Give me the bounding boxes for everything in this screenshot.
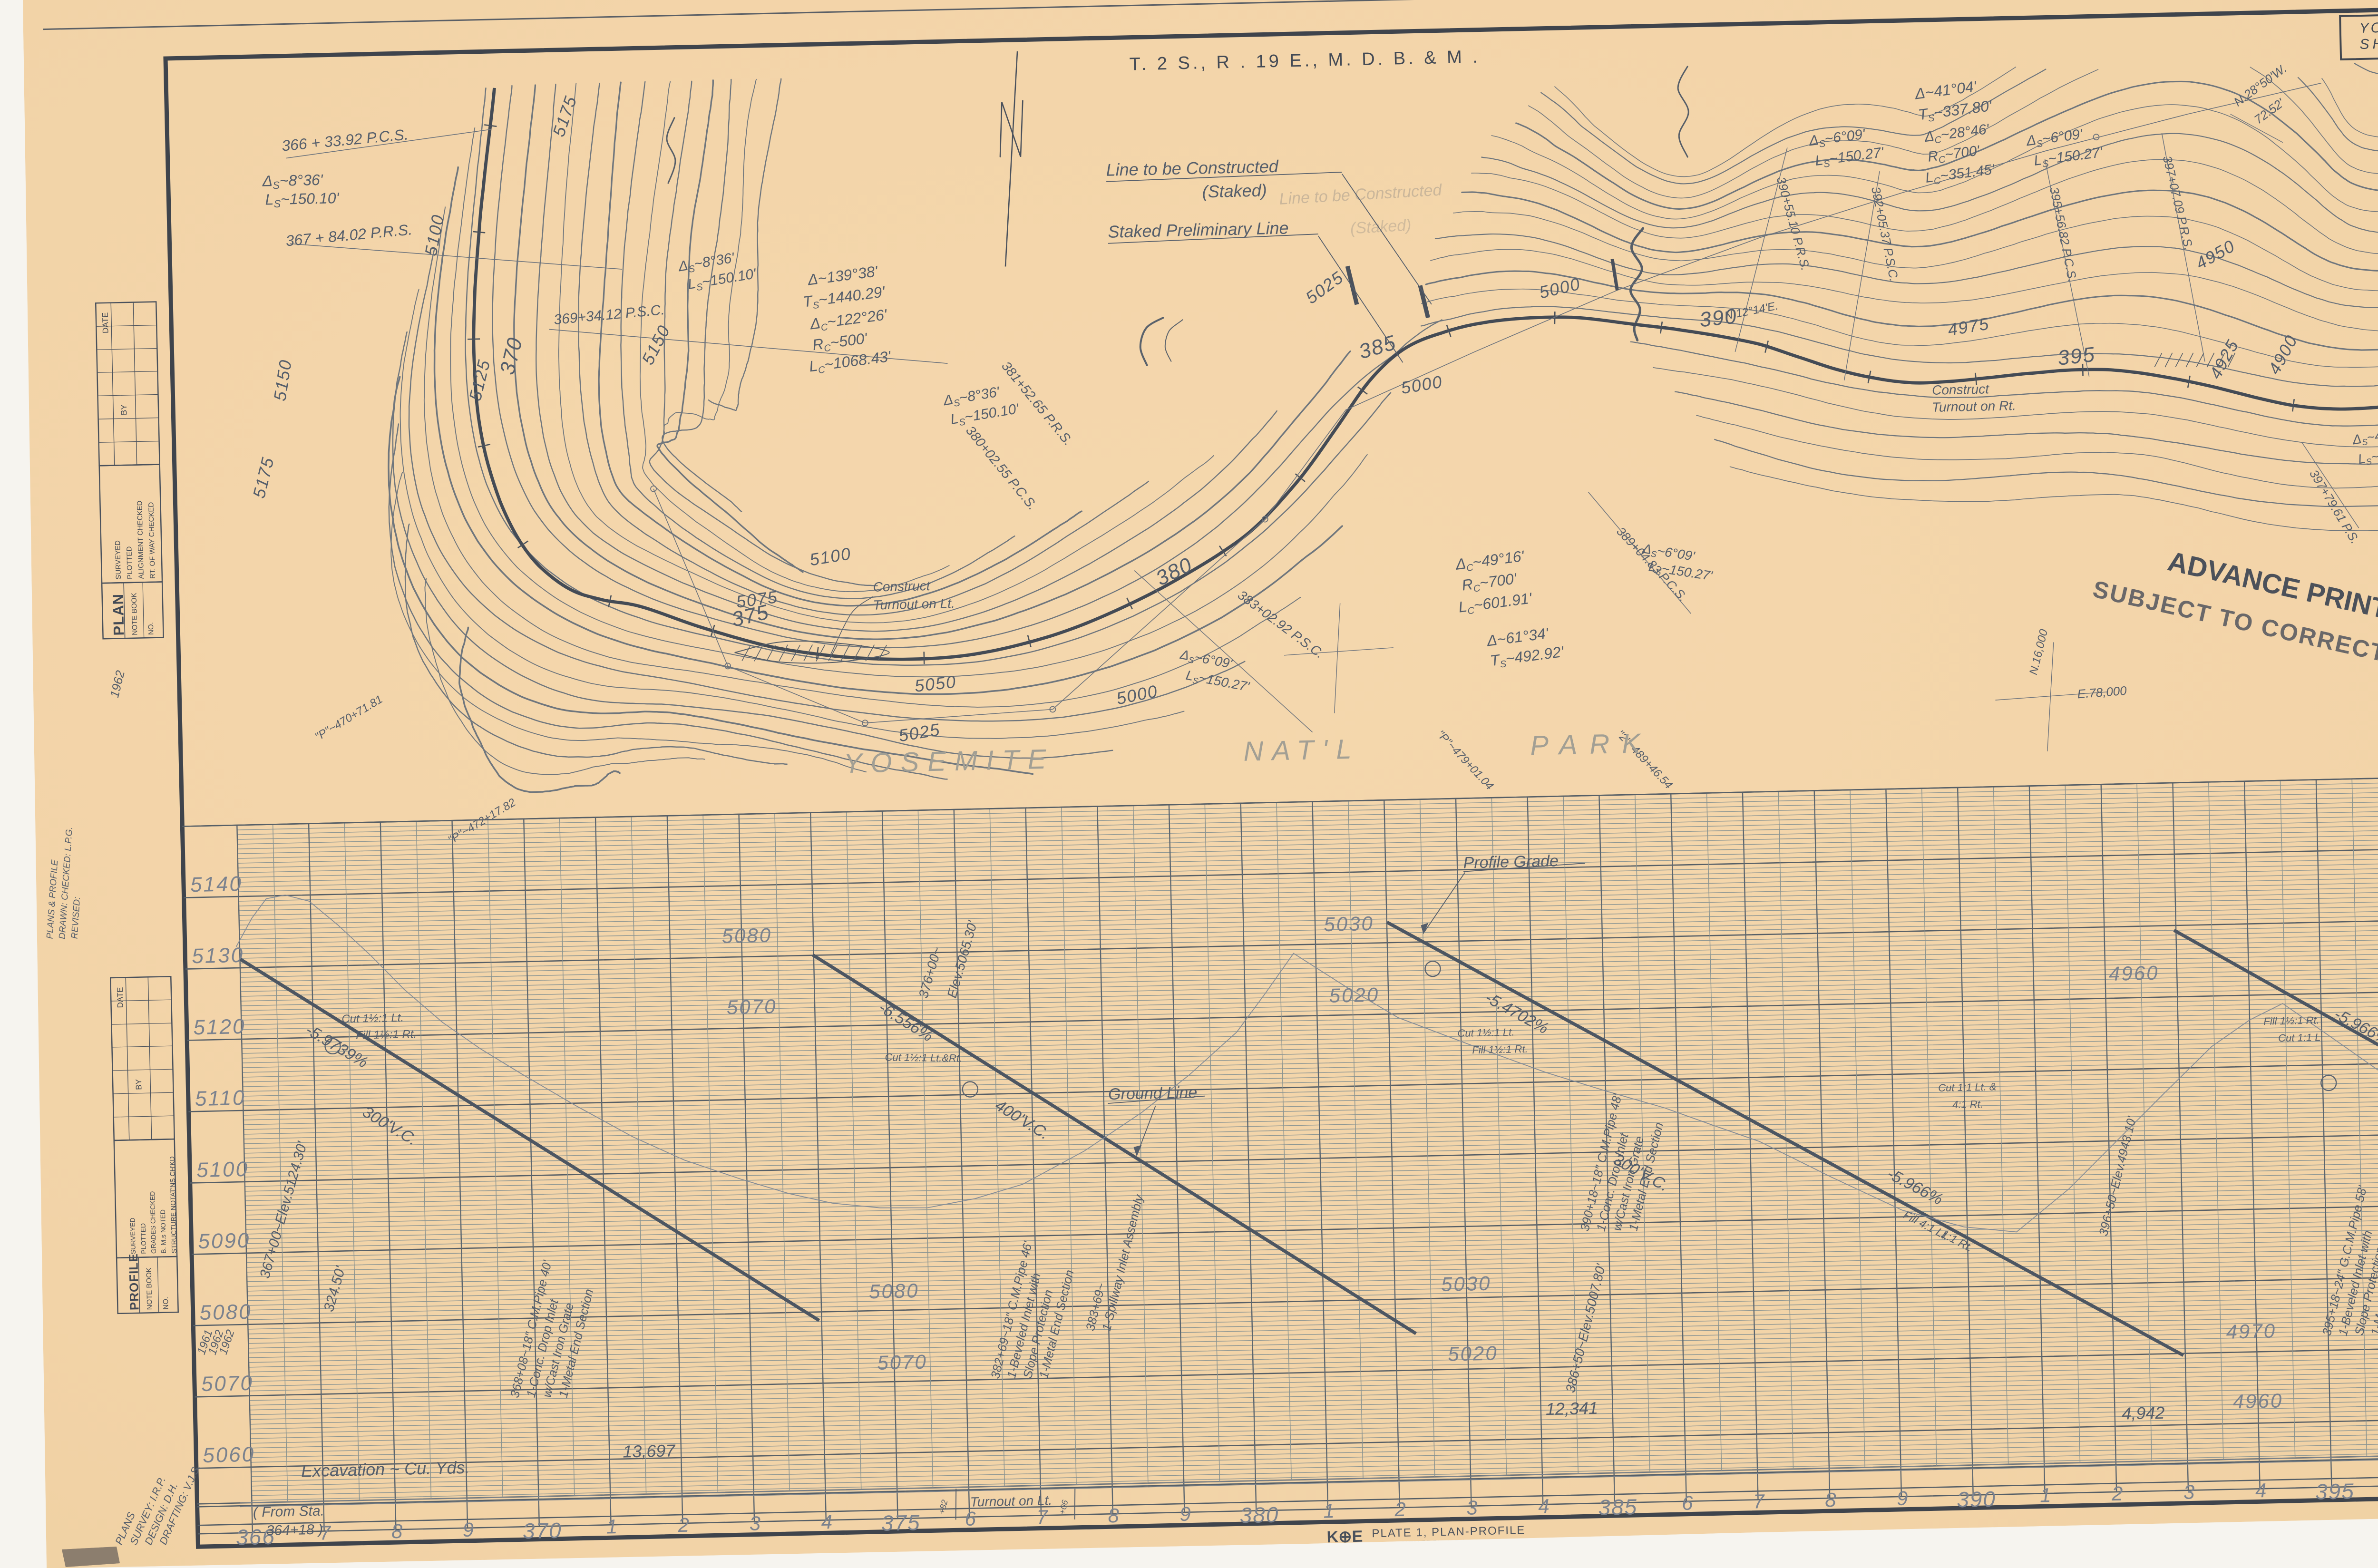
svg-text:5130: 5130 (192, 944, 244, 968)
svg-text:9: 9 (1179, 1503, 1192, 1526)
svg-text:4: 4 (821, 1510, 833, 1533)
svg-text:Staked Preliminary Line: Staked Preliminary Line (1108, 218, 1289, 241)
svg-text:8: 8 (1108, 1504, 1120, 1527)
svg-text:5090: 5090 (198, 1229, 251, 1253)
svg-text:4,942: 4,942 (2122, 1403, 2165, 1423)
svg-text:5030: 5030 (1324, 912, 1374, 935)
svg-text:Construct: Construct (873, 578, 931, 594)
svg-text:364+18 ): 364+18 ) (266, 1521, 323, 1539)
svg-text:NOTE BOOK: NOTE BOOK (145, 1267, 154, 1310)
svg-text:PARK: PARK (1530, 728, 1653, 761)
svg-text:8: 8 (391, 1520, 403, 1543)
svg-text:ΔS~8°36': ΔS~8°36' (262, 171, 324, 192)
svg-text:5060: 5060 (203, 1443, 255, 1467)
svg-text:2: 2 (2111, 1482, 2124, 1505)
svg-text:YOSEMITE: YOSEMITE (843, 743, 1055, 779)
svg-text:DATE: DATE (101, 312, 110, 333)
svg-text:7: 7 (1753, 1490, 1765, 1513)
svg-text:Profile Grade: Profile Grade (1463, 852, 1559, 872)
svg-text:375: 375 (881, 1510, 921, 1536)
svg-text:5140: 5140 (190, 872, 243, 896)
svg-text:DATE: DATE (116, 987, 125, 1008)
svg-text:Cut 1½:1 Lt.: Cut 1½:1 Lt. (341, 1012, 404, 1026)
svg-text:NO.: NO. (147, 622, 156, 635)
svg-text:370: 370 (522, 1518, 562, 1544)
svg-text:Line to be Constructed: Line to be Constructed (1106, 156, 1279, 180)
svg-text:BY: BY (119, 404, 128, 415)
svg-text:9: 9 (1897, 1487, 1909, 1510)
svg-text:5120: 5120 (193, 1015, 246, 1039)
svg-text:2: 2 (1394, 1498, 1407, 1521)
svg-text:(Staked): (Staked) (1350, 216, 1412, 237)
svg-text:B. M.s NOTED: B. M.s NOTED (159, 1209, 167, 1254)
svg-text:395: 395 (2315, 1479, 2355, 1504)
svg-text:( From Sta.: ( From Sta. (253, 1503, 325, 1520)
svg-text:5030: 5030 (1441, 1272, 1491, 1295)
svg-text:3: 3 (749, 1512, 761, 1535)
svg-text:Turnout on Lt.: Turnout on Lt. (970, 1493, 1052, 1510)
svg-text:5080: 5080 (869, 1279, 919, 1303)
svg-text:SURVEYED: SURVEYED (114, 540, 123, 580)
svg-text:9: 9 (462, 1519, 475, 1541)
svg-text:8: 8 (1825, 1489, 1837, 1511)
svg-text:NO.: NO. (162, 1297, 170, 1310)
svg-text:ALIGNMENT CHECKED: ALIGNMENT CHECKED (136, 500, 146, 579)
svg-text:Cut 1½:1 Lt.&Rt.: Cut 1½:1 Lt.&Rt. (885, 1051, 962, 1064)
svg-text:3: 3 (2183, 1480, 2195, 1503)
svg-text:PLAN: PLAN (110, 594, 127, 636)
svg-text:390: 390 (1698, 304, 1738, 331)
svg-text:PLOTTED: PLOTTED (125, 546, 134, 579)
svg-text:5070: 5070 (726, 995, 777, 1018)
svg-text:Fill 1½:1 Rt.: Fill 1½:1 Rt. (1472, 1043, 1528, 1056)
svg-text:12,341: 12,341 (1545, 1398, 1598, 1419)
svg-text:2: 2 (677, 1514, 690, 1537)
svg-text:Fill 1½:1 Rt.: Fill 1½:1 Rt. (356, 1028, 417, 1042)
svg-text:(Staked): (Staked) (1202, 180, 1267, 201)
svg-text:1: 1 (1323, 1500, 1335, 1522)
svg-text:4: 4 (2255, 1479, 2267, 1502)
svg-text:5110: 5110 (195, 1086, 246, 1110)
svg-text:NOTE BOOK: NOTE BOOK (130, 593, 139, 635)
svg-text:4:1 Rt.: 4:1 Rt. (1952, 1098, 1983, 1110)
svg-text:5080: 5080 (721, 924, 772, 947)
svg-text:Cut 1½:1 Lt.: Cut 1½:1 Lt. (1457, 1026, 1514, 1039)
svg-text:BY: BY (134, 1079, 143, 1090)
svg-text:380: 380 (1239, 1502, 1279, 1528)
svg-text:Cut 1:1 Lt. &: Cut 1:1 Lt. & (1938, 1081, 1997, 1094)
svg-text:1: 1 (2040, 1484, 2052, 1507)
svg-text:Excavation ~ Cu. Yds.: Excavation ~ Cu. Yds. (301, 1458, 470, 1481)
svg-text:5020: 5020 (1448, 1342, 1498, 1365)
svg-text:3: 3 (1466, 1496, 1479, 1519)
svg-text:5020: 5020 (1329, 984, 1379, 1007)
svg-text:Cut 1:1 L: Cut 1:1 L (2278, 1031, 2321, 1044)
svg-text:Fill 1½:1 Rt.: Fill 1½:1 Rt. (2263, 1014, 2320, 1027)
svg-text:PLOTTED: PLOTTED (139, 1223, 147, 1254)
svg-text:395: 395 (2056, 343, 2096, 370)
svg-text:Construct: Construct (1932, 381, 1990, 398)
svg-text:4: 4 (1538, 1495, 1550, 1518)
svg-text:5070: 5070 (877, 1351, 927, 1374)
svg-text:Turnout on Lt.: Turnout on Lt. (873, 596, 955, 613)
svg-text:5070: 5070 (201, 1372, 253, 1396)
svg-text:PROFILE: PROFILE (126, 1253, 142, 1310)
svg-text:7: 7 (1036, 1506, 1049, 1529)
svg-text:4960: 4960 (2109, 962, 2159, 985)
svg-text:385: 385 (1598, 1494, 1638, 1520)
svg-text:GRADES CHECKED: GRADES CHECKED (148, 1191, 157, 1254)
svg-text:SURVEYED: SURVEYED (128, 1217, 137, 1254)
svg-text:5080: 5080 (199, 1300, 252, 1325)
svg-text:5100: 5100 (196, 1158, 249, 1182)
svg-text:13,697: 13,697 (623, 1441, 676, 1461)
svg-text:390: 390 (1957, 1486, 1997, 1512)
svg-text:SHEET: SHEET (2359, 35, 2378, 52)
svg-text:RT. OF WAY CHECKED: RT. OF WAY CHECKED (147, 502, 157, 579)
svg-text:4960: 4960 (2232, 1389, 2283, 1412)
svg-text:NAT'L: NAT'L (1243, 733, 1360, 767)
svg-text:6: 6 (1682, 1491, 1694, 1514)
svg-text:4970: 4970 (2226, 1320, 2276, 1343)
svg-text:1: 1 (606, 1515, 618, 1538)
svg-text:Turnout on Rt.: Turnout on Rt. (1932, 398, 2017, 415)
svg-text:6: 6 (965, 1507, 977, 1530)
